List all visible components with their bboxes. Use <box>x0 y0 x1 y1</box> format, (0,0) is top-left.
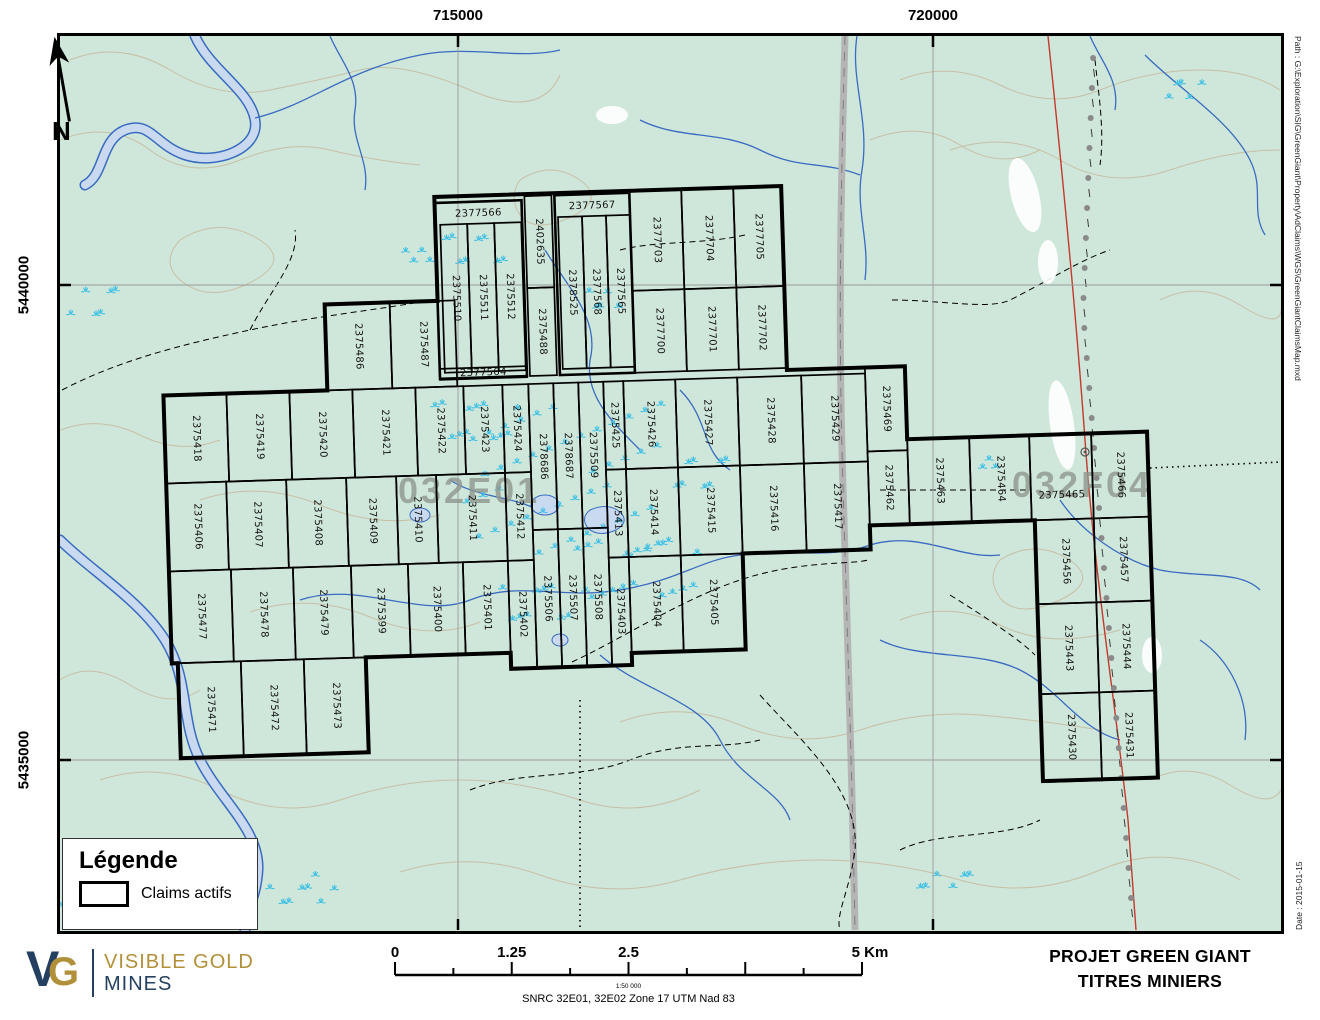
claim-label: 2377568 <box>590 268 602 315</box>
vg-logo-icon: V G <box>26 946 88 1000</box>
track-dot <box>1103 595 1109 601</box>
track-dot <box>1123 835 1129 841</box>
claim-label: 2377567 <box>569 200 616 212</box>
marsh-icon <box>693 548 702 553</box>
claim-label: 2375410 <box>411 496 423 543</box>
claim-label: 2402635 <box>533 218 545 265</box>
claim-label: 2375443 <box>1062 625 1074 672</box>
track-dot <box>1111 685 1117 691</box>
marsh-icon <box>425 256 434 261</box>
marsh-icon <box>533 410 542 415</box>
claim-label: 2375411 <box>466 494 478 541</box>
company-logo: V G VISIBLE GOLD MINES <box>26 946 254 1000</box>
track-dot <box>1106 625 1112 631</box>
claim-label: 2375469 <box>880 385 892 432</box>
marsh-icon <box>284 897 293 902</box>
claim-label: 2375430 <box>1065 714 1077 761</box>
claim-label: 2375416 <box>767 485 779 532</box>
marsh-icon <box>401 247 410 252</box>
map-sheet: 032E01032F04 237756623755102375511237551… <box>0 0 1320 1020</box>
claim-label: 2375478 <box>257 591 269 638</box>
claim-label: 2377701 <box>705 306 717 353</box>
claim-label: 2378525 <box>566 269 578 316</box>
marsh-icon <box>625 413 634 418</box>
marsh-icon <box>637 448 646 453</box>
legend-item-label: Claims actifs <box>141 885 232 903</box>
marsh-icon <box>633 547 642 552</box>
claim-label: 2375419 <box>253 413 265 460</box>
claim-label: 2375413 <box>611 490 623 537</box>
claim-label: 2375508 <box>591 574 603 621</box>
claim-swatch-icon <box>79 881 129 907</box>
track-dot <box>1082 265 1088 271</box>
claim-label: 2375506 <box>541 575 553 622</box>
marsh-icon <box>587 488 596 493</box>
track-dot <box>1085 175 1091 181</box>
marsh-icon <box>491 527 500 532</box>
claim-label: 2375444 <box>1120 623 1132 670</box>
claim-label: 2375403 <box>614 588 626 635</box>
claim-label: 2375405 <box>707 579 719 626</box>
graticule-label-easting: 715000 <box>433 7 483 24</box>
map-file-path: Path : G:\Exploration\SIG\GreenGiant\Pro… <box>1293 36 1303 381</box>
marsh-icon <box>985 455 994 460</box>
track-dot <box>1096 505 1102 511</box>
claim-label: 2377564 <box>460 367 507 379</box>
claim-label: 2375428 <box>764 397 776 444</box>
track-dot <box>1126 865 1132 871</box>
marsh-icon <box>593 426 602 431</box>
claim-label: 2375466 <box>1114 452 1126 499</box>
claim-label: 2378686 <box>537 433 549 480</box>
map-canvas: 032E01032F04 237756623755102375511237551… <box>60 36 1281 931</box>
marsh-icon <box>474 235 483 240</box>
marsh-icon <box>66 310 75 315</box>
claim-label: 2375414 <box>647 489 659 536</box>
claim-label: 2375477 <box>195 593 207 640</box>
claim-label: 2377703 <box>651 217 663 264</box>
claims-layer: 2377566237551023755112375512240263523754… <box>157 175 1157 810</box>
track-dot <box>1084 205 1090 211</box>
map-date: Date : 2015-01-15 <box>1294 861 1304 930</box>
marsh-icon <box>689 582 698 587</box>
claim-label: 2375457 <box>1117 536 1129 583</box>
track-dot <box>1080 295 1086 301</box>
marsh-icon <box>643 543 652 548</box>
claim-label: 2375402 <box>516 591 528 638</box>
scalebar-label: 0 <box>391 944 399 961</box>
legend: Légende Claims actifs <box>62 838 258 930</box>
claim-label: 2375426 <box>644 401 656 448</box>
marsh-icon <box>949 882 958 887</box>
marsh-icon <box>317 898 326 903</box>
claim-label: 2375406 <box>191 503 203 550</box>
claim-label: 2375471 <box>205 686 217 733</box>
marsh-icon <box>462 429 471 434</box>
marsh-icon <box>303 883 312 888</box>
marsh-icon <box>1197 79 1206 84</box>
map-title-line1: PROJET GREEN GIANT <box>1005 944 1295 969</box>
claim-label: 2375427 <box>701 399 713 446</box>
track-dot <box>1083 235 1089 241</box>
graticule-label-easting: 720000 <box>908 7 958 24</box>
claim-label: 2375424 <box>510 405 522 452</box>
scale-ratio: 1:50 000 <box>616 983 642 990</box>
scale-bar: 01.252.55 Km1:50 000SNRC 32E01, 32E02 Zo… <box>385 942 895 1012</box>
track-dot <box>1101 565 1107 571</box>
logo-line1: VISIBLE GOLD <box>104 951 254 973</box>
marsh-icon <box>480 234 489 239</box>
claim-label: 2375409 <box>366 498 378 545</box>
claim-label: 2375487 <box>417 321 429 368</box>
track-dot <box>1121 805 1127 811</box>
claim-label: 2375488 <box>536 308 548 355</box>
marsh-icon <box>978 463 987 468</box>
marsh-icon <box>442 234 451 239</box>
graticule-label-northing: 5435000 <box>16 731 33 789</box>
legend-item: Claims actifs <box>79 881 257 907</box>
marsh-icon <box>623 550 632 555</box>
claim-label: 2375422 <box>434 407 446 454</box>
marsh-icon <box>535 549 544 554</box>
marsh-icon <box>1165 93 1174 98</box>
claim-label: 2375417 <box>831 483 843 530</box>
track-dot <box>1090 55 1096 61</box>
claim-label: 2375420 <box>316 411 328 458</box>
claim-label: 2375408 <box>311 499 323 546</box>
north-arrow: N <box>28 30 98 145</box>
claim-label: 2375464 <box>994 455 1006 502</box>
scalebar-label: 2.5 <box>618 944 639 961</box>
marsh-icon <box>469 435 478 440</box>
track-dot <box>1084 355 1090 361</box>
datum-note: SNRC 32E01, 32E02 Zone 17 UTM Nad 83 <box>522 993 735 1005</box>
marsh-icon <box>311 871 320 876</box>
marsh-icon <box>657 400 666 405</box>
claim-label: 2375431 <box>1122 712 1134 759</box>
marsh-icon <box>499 256 508 261</box>
marsh-icon <box>503 430 512 435</box>
claim-label: 2375400 <box>431 586 443 633</box>
marsh-icon <box>567 536 576 541</box>
north-label: N <box>52 116 71 145</box>
track-dot <box>1088 115 1094 121</box>
claim-label: 2375465 <box>1039 489 1086 501</box>
claim-label: 2377704 <box>703 215 715 262</box>
logo-divider <box>92 949 94 997</box>
track-dot <box>1086 145 1092 151</box>
claim-label: 2375507 <box>566 574 578 621</box>
track-dot <box>1099 535 1105 541</box>
claim-label: 2375412 <box>513 493 525 540</box>
marsh-icon <box>577 432 586 437</box>
marsh-icon <box>501 423 510 428</box>
marsh-icon <box>631 511 640 516</box>
track-dot <box>1116 745 1122 751</box>
track-dot <box>1108 655 1114 661</box>
claim-label: 2375512 <box>504 273 516 320</box>
claim-label: 2377702 <box>755 304 767 351</box>
claim-label: 2377700 <box>653 307 665 354</box>
graticule-label-northing: 5440000 <box>16 256 33 314</box>
track-dot <box>1128 895 1134 901</box>
claim-label: 2375479 <box>317 589 329 636</box>
marsh-icon <box>330 885 339 890</box>
claim-label: 2375473 <box>330 682 342 729</box>
marsh-icon <box>594 538 603 543</box>
marsh-icon <box>583 530 592 535</box>
claim-label: 2375425 <box>608 402 620 449</box>
marsh-icon <box>678 585 687 590</box>
claim-label: 2375421 <box>379 409 391 456</box>
claim-label: 2375510 <box>450 275 462 322</box>
legend-title: Légende <box>79 847 257 875</box>
claim-label: 2378687 <box>562 432 574 479</box>
track-dot <box>1086 385 1092 391</box>
claim-label: 2377705 <box>752 213 764 260</box>
claim-label: 2375509 <box>587 432 599 479</box>
claim-label: 2377566 <box>455 207 502 219</box>
marsh-icon <box>265 884 274 889</box>
track-dot <box>1089 415 1095 421</box>
claim-label: 2375404 <box>650 581 662 628</box>
map-title-block: PROJET GREEN GIANT TITRES MINIERS <box>1005 944 1295 995</box>
claim-label: 2375472 <box>268 684 280 731</box>
marsh-icon <box>81 287 90 292</box>
marsh-icon <box>438 399 447 404</box>
scalebar-label: 5 Km <box>852 944 889 961</box>
marsh-icon <box>549 403 558 408</box>
claim-label: 2377565 <box>614 268 626 315</box>
logo-line2: MINES <box>104 973 254 995</box>
marsh-icon <box>513 458 522 463</box>
map-title-line2: TITRES MINIERS <box>1005 969 1295 994</box>
marsh-icon <box>417 247 426 252</box>
claim-label: 2375486 <box>352 323 364 370</box>
marsh-icon <box>573 545 582 550</box>
claim-label: 2375415 <box>704 487 716 534</box>
claim-label: 2375418 <box>190 415 202 462</box>
claim-label: 2375423 <box>478 406 490 453</box>
claim-label: 2375407 <box>251 501 263 548</box>
scalebar-label: 1.25 <box>497 944 526 961</box>
marsh-icon <box>455 258 464 263</box>
marsh-icon <box>584 542 593 547</box>
claim-label: 2375456 <box>1059 538 1071 585</box>
claim-label: 2375511 <box>477 274 489 321</box>
marsh-icon <box>498 584 507 589</box>
claim-label: 2375462 <box>882 464 894 511</box>
marsh-icon <box>571 495 580 500</box>
track-dot <box>1113 715 1119 721</box>
marsh-icon <box>668 588 677 593</box>
marsh-icon <box>448 233 457 238</box>
claim-label: 2375429 <box>828 395 840 442</box>
marsh-icon <box>409 257 418 262</box>
claim-label: 2375401 <box>481 584 493 631</box>
marsh-icon <box>479 400 488 405</box>
track-dot <box>1089 85 1095 91</box>
track-dot <box>1081 325 1087 331</box>
claim-label: 2375463 <box>933 457 945 504</box>
claim-label: 2375399 <box>375 587 387 634</box>
